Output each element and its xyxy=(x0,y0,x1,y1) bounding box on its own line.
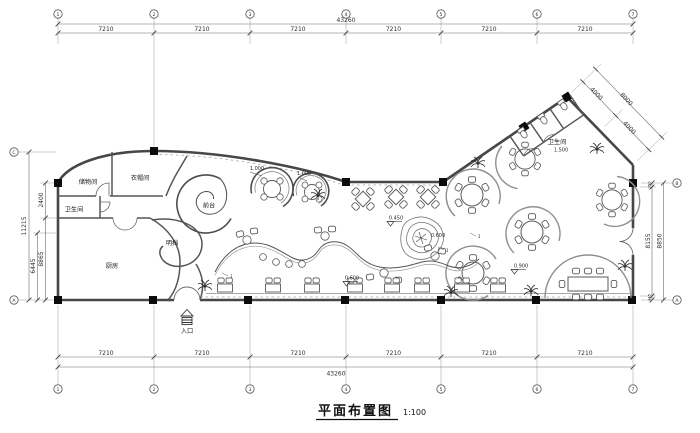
booth-pod-2 xyxy=(293,173,329,206)
dim-top-2: 7210 xyxy=(194,26,209,33)
serpentine-bench xyxy=(215,242,479,276)
drawing-title: 平面布置图 xyxy=(318,403,393,419)
booth-pod-1 xyxy=(251,168,293,207)
room-label-entrance: 入口 xyxy=(181,328,193,335)
grid-bubble-left-top: C xyxy=(12,150,15,156)
bottom-grid-bubbles: 1 2 3 4 5 6 7 xyxy=(54,385,637,393)
dim-right-bottom-small: 345 xyxy=(647,293,652,301)
leader-mark-1: 1 xyxy=(446,248,449,253)
dim-bot-2: 7210 xyxy=(194,350,209,357)
elevation-pod1: 1.000 xyxy=(250,166,264,172)
room-label-open-kitchen: 明档 xyxy=(166,239,178,247)
serpentine-chairs xyxy=(236,226,446,283)
grid-bubble-bot-7: 7 xyxy=(632,387,635,393)
dim-bot-6: 7210 xyxy=(577,350,592,357)
dim-wing-total: 8000 xyxy=(618,92,634,108)
grid-bubble-bot-5: 5 xyxy=(440,387,443,393)
leader-mark-3: 1 xyxy=(230,274,233,279)
dim-left-inner: 6445 xyxy=(30,258,37,273)
right-double-door xyxy=(620,228,634,255)
top-extension-lines xyxy=(58,18,633,146)
dim-right-outer: 8850 xyxy=(656,233,663,248)
top-grid-bubbles: 1 2 3 4 5 6 7 xyxy=(54,10,637,18)
dim-bot-4: 7210 xyxy=(386,350,401,357)
right-dimension-assembly: 350 8155 345 8850 B A xyxy=(640,179,681,304)
grid-bubble-top-2: 2 xyxy=(153,12,156,18)
dim-bot-1: 7210 xyxy=(98,350,113,357)
dim-total-bottom: 43260 xyxy=(326,371,345,378)
elevation-pond-left: 0.450 xyxy=(389,216,403,222)
dim-left-lower: 8865 xyxy=(38,251,45,266)
grid-bubble-bot-4: 4 xyxy=(345,387,348,393)
room-label-kitchen: 厨房 xyxy=(106,262,118,270)
round-table-booths xyxy=(446,142,640,300)
elevation-toilet-floor: 1.500 xyxy=(554,148,568,154)
elevation-right-floor: 0.900 xyxy=(514,264,528,270)
wing-dimension-assembly: 4000 4000 8000 xyxy=(572,64,667,161)
dim-top-6: 7210 xyxy=(577,26,592,33)
elevation-pod2: 1.000 xyxy=(297,171,311,177)
top-dimension-assembly: 43260 7210 7210 7210 7210 7210 7210 1 2 … xyxy=(54,10,637,146)
grid-bubble-top-5: 5 xyxy=(440,12,443,18)
room-label-cloakroom: 衣帽间 xyxy=(131,174,150,182)
entrance-doors xyxy=(174,287,200,300)
grid-bubble-top-3: 3 xyxy=(249,12,252,18)
dim-right-inner: 8155 xyxy=(645,233,652,248)
banquette-row xyxy=(206,278,630,294)
left-dimension-assembly: 11215 6445 2400 8865 C A xyxy=(10,148,58,304)
leader-mark-2: 1 xyxy=(478,234,481,239)
interior-doors xyxy=(96,183,137,230)
square-tables xyxy=(344,178,447,218)
room-label-storage: 储物间 xyxy=(79,178,98,186)
dim-bot-3: 7210 xyxy=(290,350,305,357)
grid-bubble-bot-2: 2 xyxy=(153,387,156,393)
long-table xyxy=(559,268,617,300)
grid-bubble-top-6: 6 xyxy=(536,12,539,18)
floor-plan-canvas: 43260 7210 7210 7210 7210 7210 7210 1 2 … xyxy=(0,0,700,433)
grid-bubble-top-7: 7 xyxy=(632,12,635,18)
dim-wing-2: 4000 xyxy=(621,120,637,136)
bottom-dimension-lines xyxy=(58,357,633,367)
drawing-title-block: 平面布置图 1:100 xyxy=(316,403,426,420)
dim-top-3: 7210 xyxy=(290,26,305,33)
structural-columns xyxy=(54,91,637,304)
floor-plan-sheet: 43260 7210 7210 7210 7210 7210 7210 1 2 … xyxy=(0,0,700,433)
room-labels: 储物间 衣帽间 卫生间 厨房 明档 前台 卫生间 入口 xyxy=(65,138,567,335)
grid-bubble-bot-3: 3 xyxy=(249,387,252,393)
elevation-mid-floor: 0.600 xyxy=(345,276,359,282)
grid-bubble-bot-6: 6 xyxy=(536,387,539,393)
elevation-pond-right: 0.600 xyxy=(431,233,445,239)
grid-bubble-top-1: 1 xyxy=(57,12,60,18)
dim-wing-1: 4000 xyxy=(588,86,604,102)
dim-left-upper: 2400 xyxy=(38,192,45,207)
dim-right-top-small: 350 xyxy=(647,181,652,189)
dim-left-overall: 11215 xyxy=(21,216,28,235)
drawing-scale: 1:100 xyxy=(403,408,426,417)
entrance-symbol xyxy=(181,310,193,325)
grid-bubble-top-4: 4 xyxy=(345,12,348,18)
top-dimension-lines xyxy=(58,24,633,33)
grid-bubble-bot-1: 1 xyxy=(57,387,60,393)
dim-top-1: 7210 xyxy=(98,26,113,33)
grid-bubble-right-top: B xyxy=(675,181,678,187)
room-label-toilet-right: 卫生间 xyxy=(548,138,567,146)
room-label-toilet-left: 卫生间 xyxy=(65,206,84,214)
dim-top-5: 7210 xyxy=(481,26,496,33)
room-label-front-desk: 前台 xyxy=(203,202,215,210)
dim-top-4: 7210 xyxy=(386,26,401,33)
dim-bot-5: 7210 xyxy=(481,350,496,357)
outer-walls xyxy=(58,97,633,300)
bottom-dimension-assembly: 43260 7210 7210 7210 7210 7210 7210 1 2 … xyxy=(54,305,637,393)
